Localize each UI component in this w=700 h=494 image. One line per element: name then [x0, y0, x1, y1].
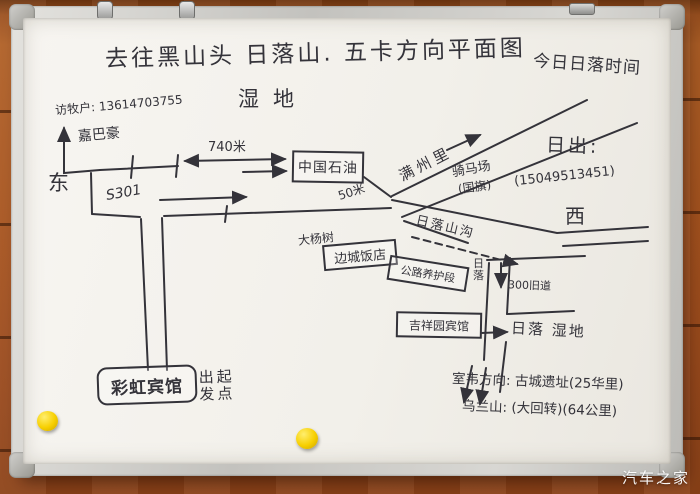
petro-station-box: 中国石油: [292, 150, 365, 183]
sunrise-label: 日出:: [546, 135, 600, 158]
yellow-magnet: [296, 428, 318, 449]
east-label: 东: [48, 172, 69, 195]
start-point-note: 出发 起点: [198, 368, 232, 403]
rainbow-hotel-label: 彩虹宾馆: [111, 371, 184, 398]
road-maintenance-label: 公路养护段: [400, 261, 457, 285]
sunset-vertical-label: 日落: [473, 258, 488, 283]
sunset-wetland-label: 日落 湿地: [511, 320, 587, 340]
rainbow-hotel-box: 彩虹宾馆: [96, 364, 197, 405]
watermark-autohome: 汽车之家: [622, 467, 690, 488]
west-label: 西: [565, 205, 585, 227]
petro-station-label: 中国石油: [298, 156, 358, 177]
start-point-col2: 起点: [216, 368, 232, 402]
wetland-subtitle: 湿地: [238, 88, 308, 111]
yellow-magnet: [37, 411, 58, 431]
whiteboard-photo: 去往黑山头 日落山. 五卡方向平面图 湿地 今日日落时间 访牧户: 136147…: [0, 0, 700, 494]
biancheng-hotel-label: 边城饭店: [333, 243, 386, 266]
jixiang-hotel-label: 吉祥园宾馆: [409, 316, 469, 334]
jixiang-hotel-box: 吉祥园宾馆: [396, 311, 482, 338]
old-road-label: 300旧道: [508, 279, 551, 293]
start-point-col1: 出发: [198, 369, 214, 403]
distance-740m: 740米: [208, 141, 246, 155]
